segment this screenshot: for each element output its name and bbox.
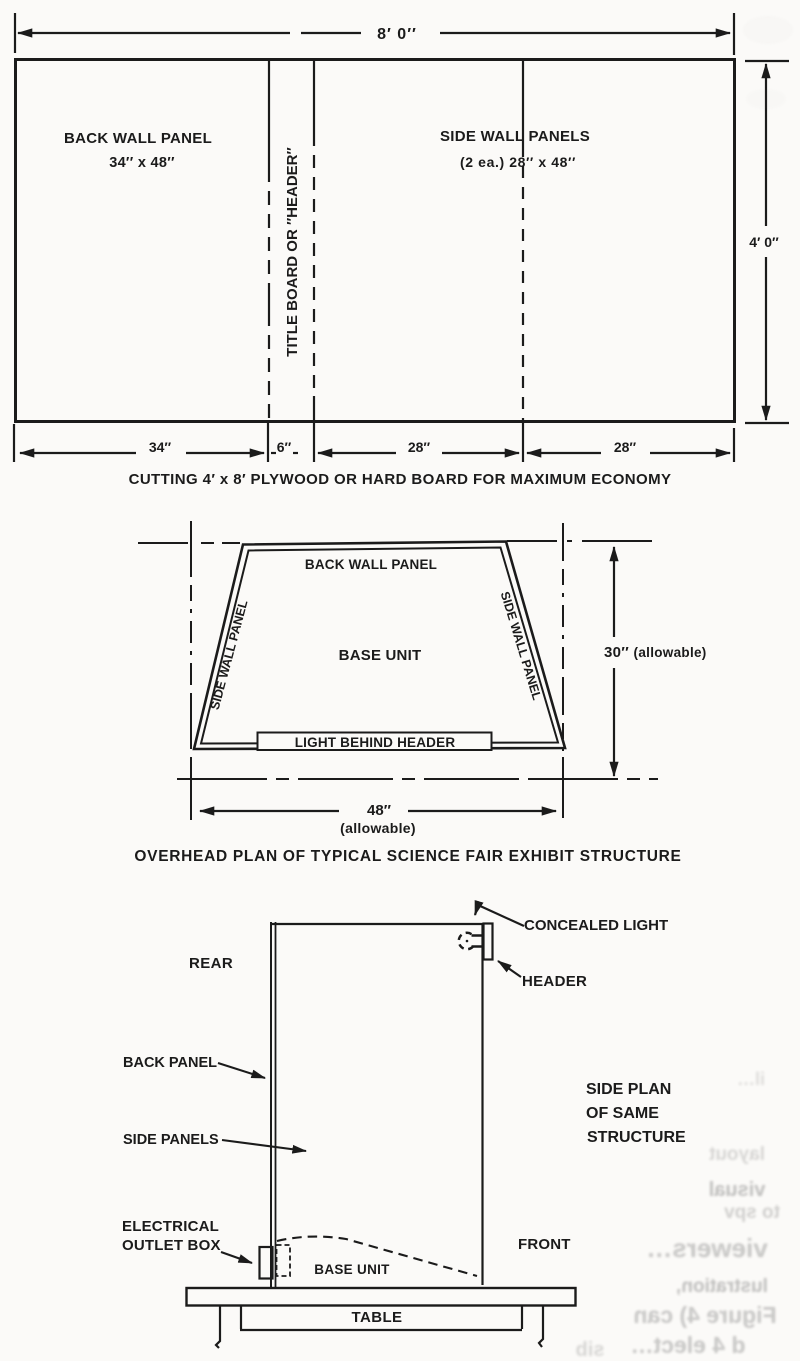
svg-text:28′′: 28′′ <box>614 439 637 455</box>
svg-text:OVERHEAD PLAN OF TYPICAL SCIEN: OVERHEAD PLAN OF TYPICAL SCIENCE FAIR EX… <box>134 848 681 865</box>
svg-text:OF SAME: OF SAME <box>586 1105 659 1122</box>
svg-text:BACK PANEL: BACK PANEL <box>123 1055 217 1071</box>
svg-text:8′ 0′′: 8′ 0′′ <box>377 26 417 43</box>
svg-text:Figure 4) can: Figure 4) can <box>633 1302 776 1328</box>
svg-text:sib: sib <box>576 1339 605 1361</box>
svg-text:viewers…: viewers… <box>646 1233 767 1263</box>
svg-text:4′ 0′′: 4′ 0′′ <box>749 234 779 250</box>
svg-text:(2 ea.) 28′′ x 48′′: (2 ea.) 28′′ x 48′′ <box>460 154 576 170</box>
svg-text:28′′: 28′′ <box>408 439 431 455</box>
svg-text:LIGHT BEHIND HEADER: LIGHT BEHIND HEADER <box>295 735 456 750</box>
svg-text:TABLE: TABLE <box>352 1309 403 1326</box>
svg-text:30′′ (allowable): 30′′ (allowable) <box>604 644 707 661</box>
svg-text:visual: visual <box>709 1179 766 1201</box>
svg-text:lustration,: lustration, <box>676 1276 768 1297</box>
svg-text:to spv: to spv <box>724 1202 780 1223</box>
svg-text:il…: il… <box>737 1069 765 1089</box>
svg-text:48′′: 48′′ <box>367 802 391 819</box>
svg-text:BASE UNIT: BASE UNIT <box>314 1262 390 1277</box>
svg-text:layout: layout <box>708 1144 765 1165</box>
svg-text:REAR: REAR <box>189 955 233 972</box>
svg-text:BASE UNIT: BASE UNIT <box>339 647 422 664</box>
svg-text:6′′: 6′′ <box>277 439 292 455</box>
svg-text:CUTTING 4′ x 8′ PLYWOOD OR HAR: CUTTING 4′ x 8′ PLYWOOD OR HARD BOARD FO… <box>129 471 672 488</box>
svg-text:BACK WALL PANEL: BACK WALL PANEL <box>305 557 437 572</box>
svg-text:TITLE BOARD OR ′′HEADER′′: TITLE BOARD OR ′′HEADER′′ <box>284 147 301 357</box>
svg-text:34′′: 34′′ <box>149 439 172 455</box>
svg-text:SIDE PANELS: SIDE PANELS <box>123 1132 219 1148</box>
svg-text:HEADER: HEADER <box>522 973 587 990</box>
svg-text:BACK WALL PANEL: BACK WALL PANEL <box>64 130 212 147</box>
svg-text:SIDE WALL PANELS: SIDE WALL PANELS <box>440 128 590 145</box>
svg-text:CONCEALED LIGHT: CONCEALED LIGHT <box>524 917 668 934</box>
svg-text:ELECTRICAL: ELECTRICAL <box>122 1218 219 1235</box>
svg-text:FRONT: FRONT <box>518 1236 571 1253</box>
svg-text:34′′ x 48′′: 34′′ x 48′′ <box>109 155 175 171</box>
svg-text:STRUCTURE: STRUCTURE <box>587 1129 686 1146</box>
svg-text:d 4 elect…: d 4 elect… <box>630 1332 745 1358</box>
svg-text:OUTLET BOX: OUTLET BOX <box>122 1237 221 1254</box>
svg-text:(allowable): (allowable) <box>340 820 416 836</box>
svg-text:SIDE PLAN: SIDE PLAN <box>586 1081 671 1098</box>
